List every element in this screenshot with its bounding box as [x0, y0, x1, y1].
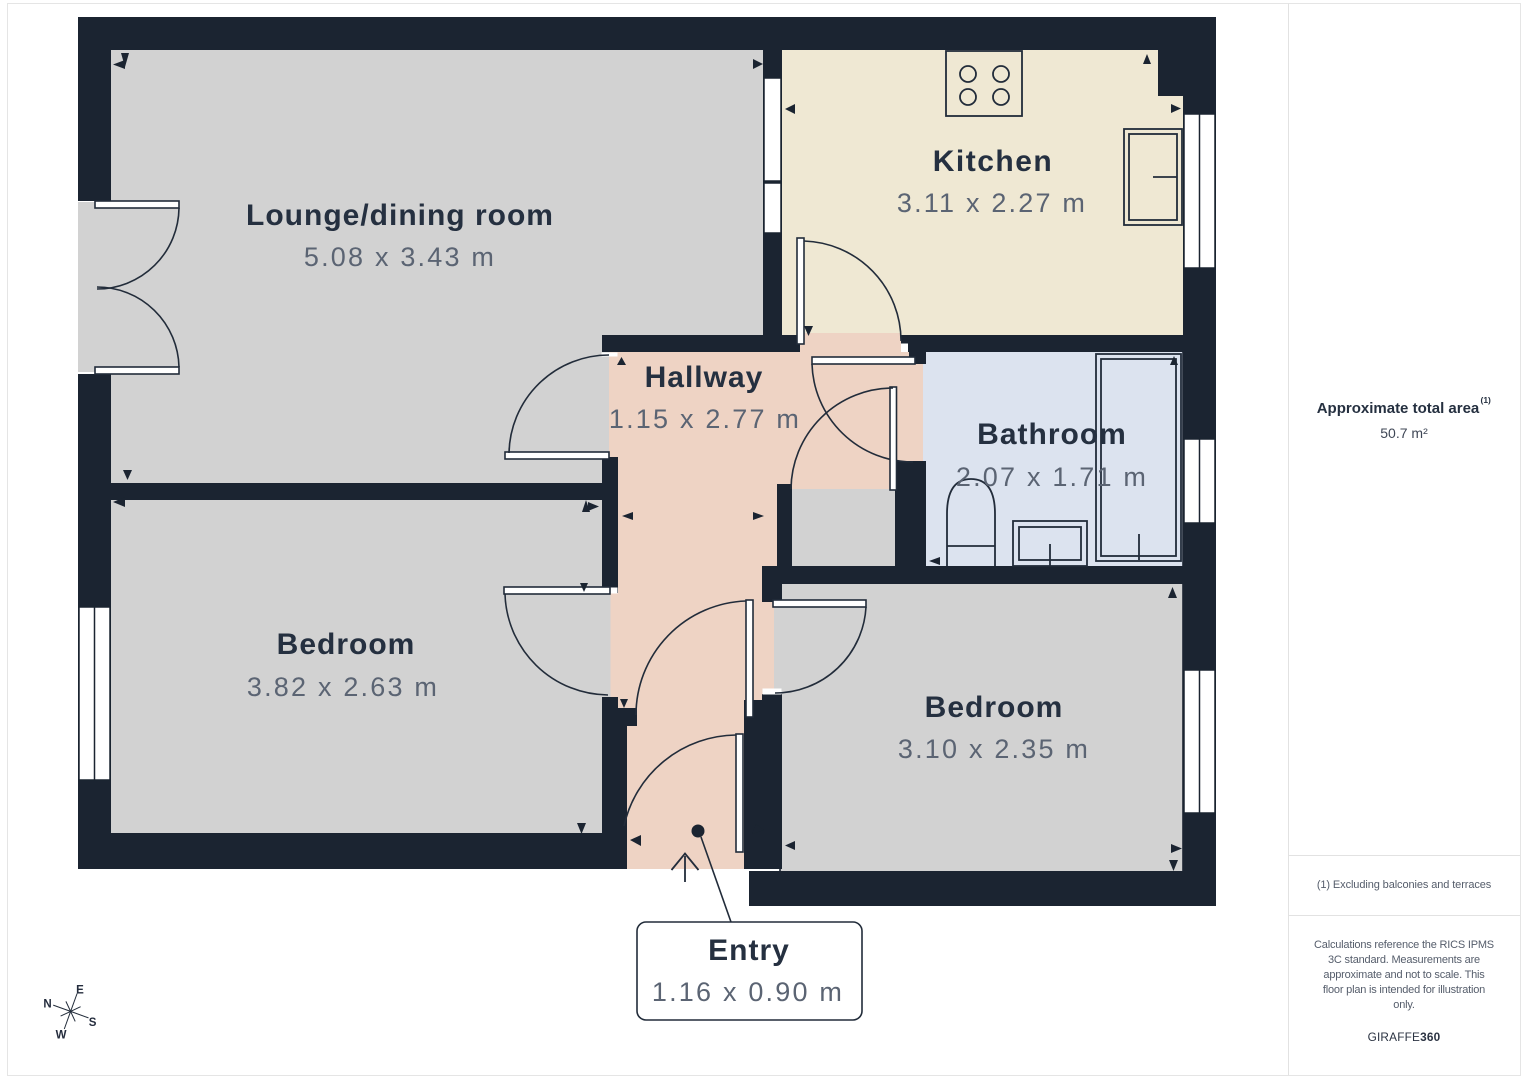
- svg-text:floor plan is intended for ill: floor plan is intended for illustration: [1323, 984, 1485, 996]
- svg-text:2.07 x 1.71 m: 2.07 x 1.71 m: [956, 462, 1148, 492]
- svg-text:Bedroom: Bedroom: [277, 628, 416, 661]
- svg-text:Approximate total area: Approximate total area: [1317, 400, 1480, 417]
- svg-text:Hallway: Hallway: [645, 361, 764, 394]
- svg-text:3C standard. Measurements are: 3C standard. Measurements are: [1328, 954, 1480, 966]
- svg-text:E: E: [76, 985, 84, 997]
- svg-text:3.11 x 2.27 m: 3.11 x 2.27 m: [897, 188, 1087, 218]
- svg-text:Calculations reference the RIC: Calculations reference the RICS IPMS: [1314, 939, 1494, 951]
- svg-text:5.08 x 3.43 m: 5.08 x 3.43 m: [304, 242, 496, 272]
- svg-text:1.15 x 2.77 m: 1.15 x 2.77 m: [609, 404, 801, 434]
- svg-text:(1): (1): [1481, 395, 1492, 405]
- svg-text:N: N: [43, 999, 51, 1011]
- svg-text:50.7 m²: 50.7 m²: [1380, 425, 1428, 441]
- svg-text:Bedroom: Bedroom: [925, 691, 1064, 724]
- svg-text:(1) Excluding balconies and te: (1) Excluding balconies and terraces: [1317, 879, 1492, 891]
- svg-text:W: W: [56, 1030, 67, 1042]
- svg-text:Bathroom: Bathroom: [977, 418, 1127, 451]
- svg-text:only.: only.: [1393, 999, 1415, 1011]
- svg-text:Kitchen: Kitchen: [933, 145, 1054, 178]
- svg-text:S: S: [89, 1017, 97, 1029]
- svg-text:1.16 x 0.90 m: 1.16 x 0.90 m: [652, 977, 844, 1007]
- svg-text:3.10 x 2.35 m: 3.10 x 2.35 m: [898, 734, 1090, 764]
- svg-text:Entry: Entry: [708, 934, 790, 967]
- svg-text:3.82 x 2.63 m: 3.82 x 2.63 m: [247, 672, 439, 702]
- svg-text:Lounge/dining room: Lounge/dining room: [246, 199, 554, 232]
- svg-text:GIRAFFE360: GIRAFFE360: [1368, 1030, 1441, 1044]
- svg-text:approximate and not to scale.: approximate and not to scale. This: [1323, 969, 1485, 981]
